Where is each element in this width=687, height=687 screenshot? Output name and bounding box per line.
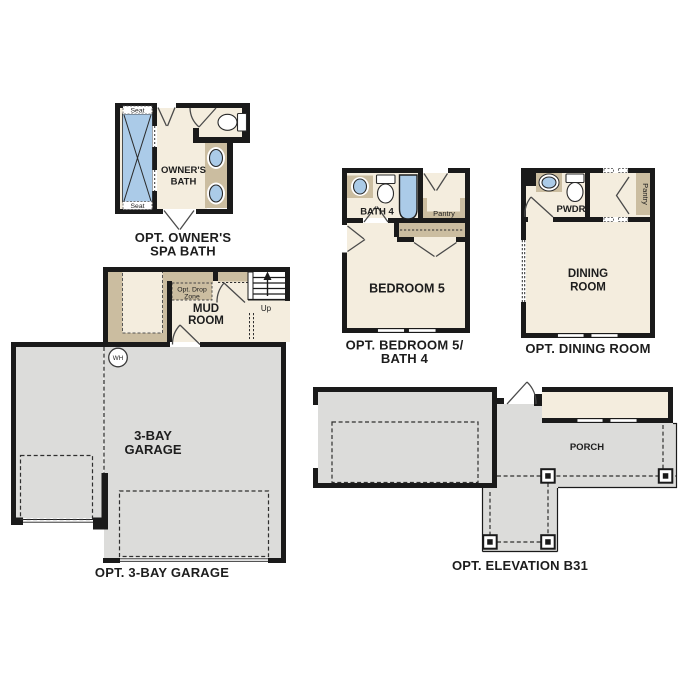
window [591, 334, 618, 338]
shower: Seat Seat [123, 106, 158, 210]
elevation-plan: PORCH OPT. ELEVATION B31 [313, 382, 677, 573]
porch-label: PORCH [570, 442, 604, 453]
porch-post [659, 469, 673, 483]
bath4-sink [351, 177, 369, 196]
bath4-toilet [377, 175, 396, 203]
pantry-label: Pantry [433, 209, 455, 218]
garage-caption: OPT. 3-BAY GARAGE [95, 565, 229, 580]
dining-plan: PWDR Pantry DINING ROOM OPT. DINING ROOM [521, 168, 655, 356]
garage-plan: Up MUD ROOM Opt. Drop Zone [11, 267, 290, 580]
powder-toilet [566, 174, 584, 202]
dining-pantry-label: Pantry [641, 183, 650, 205]
spa-bath-plan: Seat Seat [115, 103, 250, 259]
floorplan-canvas: Seat Seat [0, 0, 687, 687]
garage-label-1: 3-BAY [134, 428, 172, 443]
window [558, 334, 585, 338]
garage-label-2: GARAGE [124, 442, 181, 457]
porch-post [541, 469, 555, 483]
window [378, 329, 405, 333]
vanity [205, 143, 227, 208]
wh-label: WH [113, 355, 124, 362]
drop-zone-label-1: Opt. Drop [177, 287, 207, 294]
spa-bath-caption-2: SPA BATH [150, 244, 216, 259]
elevation-caption: OPT. ELEVATION B31 [452, 558, 588, 573]
powder-sink [539, 174, 559, 191]
bath4-label: BATH 4 [360, 207, 394, 218]
toilet [218, 114, 247, 132]
window [610, 419, 637, 423]
mud-room-label-1: MUD [193, 303, 219, 315]
mud-room-label-2: ROOM [188, 315, 224, 327]
porch-post [483, 535, 497, 549]
water-heater: WH [109, 348, 128, 367]
owners-bath-label-2: BATH [171, 177, 197, 188]
bedroom5-label: BEDROOM 5 [369, 282, 445, 296]
bedroom5-plan: BATH 4 Pantry BEDROOM 5 OPT. BEDROOM 5/ … [342, 168, 470, 366]
window [409, 329, 437, 333]
bath4-tub [400, 175, 418, 219]
drop-zone-label-2: Zone [184, 294, 200, 301]
up-label: Up [261, 304, 272, 313]
window [577, 419, 603, 423]
porch-post [541, 535, 555, 549]
dining-caption: OPT. DINING ROOM [525, 341, 650, 356]
dining-label-1: DINING [568, 268, 608, 280]
seat-top-label: Seat [131, 107, 145, 114]
owners-bath-label-1: OWNER'S [161, 165, 206, 176]
floorplan-sheet: Seat Seat [0, 0, 687, 687]
dining-label-2: ROOM [570, 282, 606, 294]
powder-label: PWDR [556, 204, 585, 215]
bedroom5-caption-2: BATH 4 [381, 351, 429, 366]
seat-bottom-label: Seat [131, 203, 145, 210]
front-door-swing [507, 382, 536, 404]
